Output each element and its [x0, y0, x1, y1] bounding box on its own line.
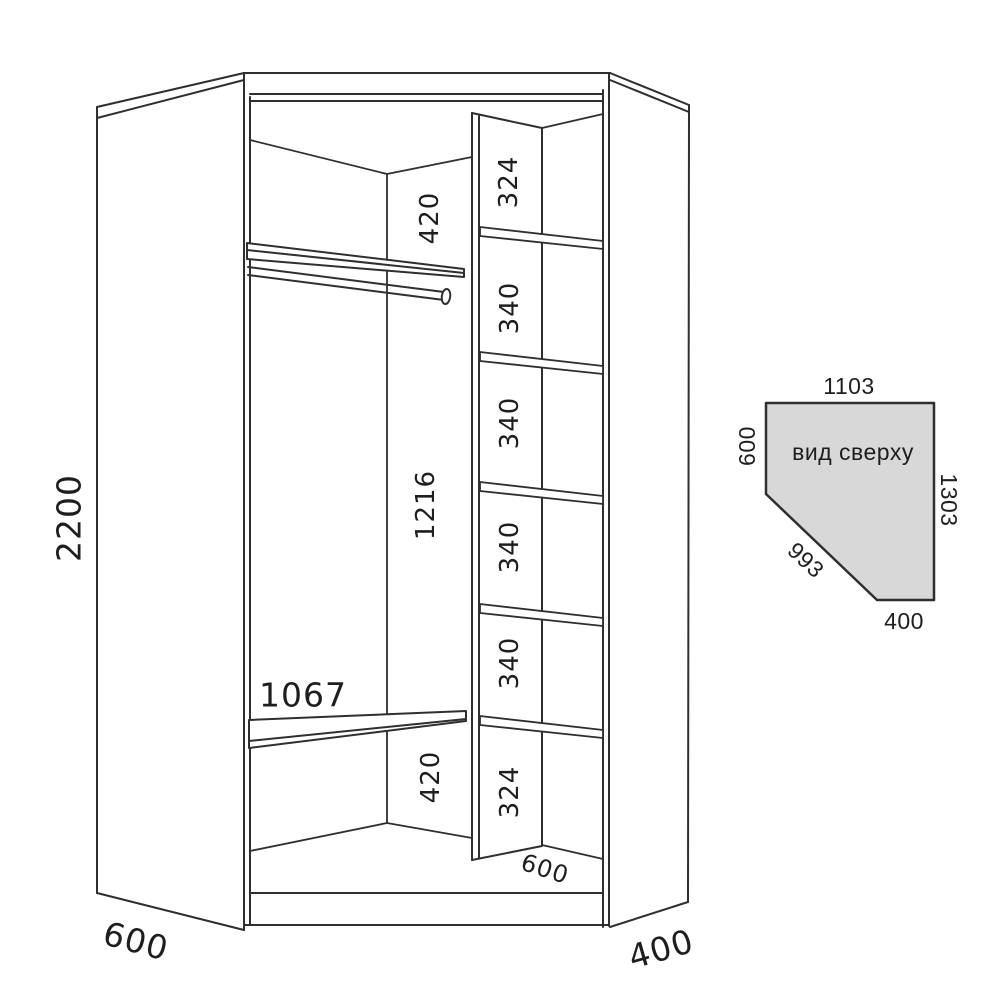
lower-shelf	[249, 711, 466, 748]
left-side-panel	[97, 73, 244, 930]
top-view-shape	[766, 403, 934, 600]
topview-dim-left-depth: 600	[734, 426, 760, 466]
topview-dim-back-width: 1103	[823, 373, 874, 399]
dim-overall-height: 2200	[50, 474, 89, 562]
right-side-panel	[610, 73, 689, 927]
topview-dim-right-depth: 1303	[936, 473, 962, 526]
dim-column-depth: 600	[517, 848, 572, 890]
wardrobe-schematic: 2200 600 400 1067 420 1216 420 600 324 3…	[0, 0, 1000, 1000]
drawing-canvas: 2200 600 400 1067 420 1216 420 600 324 3…	[0, 0, 1000, 1000]
dim-bottom-section: 420	[416, 751, 446, 804]
dim-column-section-1: 324	[494, 156, 524, 209]
dim-top-section: 420	[415, 192, 445, 245]
dim-column-section-5: 340	[495, 637, 525, 690]
dim-column-section-4: 340	[495, 521, 525, 574]
dim-lower-shelf-length: 1067	[259, 676, 347, 715]
dim-column-section-6: 324	[495, 766, 525, 819]
main-view-dimensions: 2200 600 400 1067 420 1216 420 600 324 3…	[50, 156, 699, 977]
top-view: 1103 600 вид сверху 1303 993 400	[734, 373, 962, 634]
dim-left-side-width: 600	[99, 914, 173, 969]
dim-hanging-section: 1216	[411, 470, 441, 540]
topview-caption: вид сверху	[792, 439, 914, 465]
dim-column-section-3: 340	[495, 397, 525, 450]
topview-dim-right-return: 400	[884, 608, 924, 634]
dim-column-section-2: 340	[495, 282, 525, 335]
dim-right-side-width: 400	[624, 921, 698, 977]
